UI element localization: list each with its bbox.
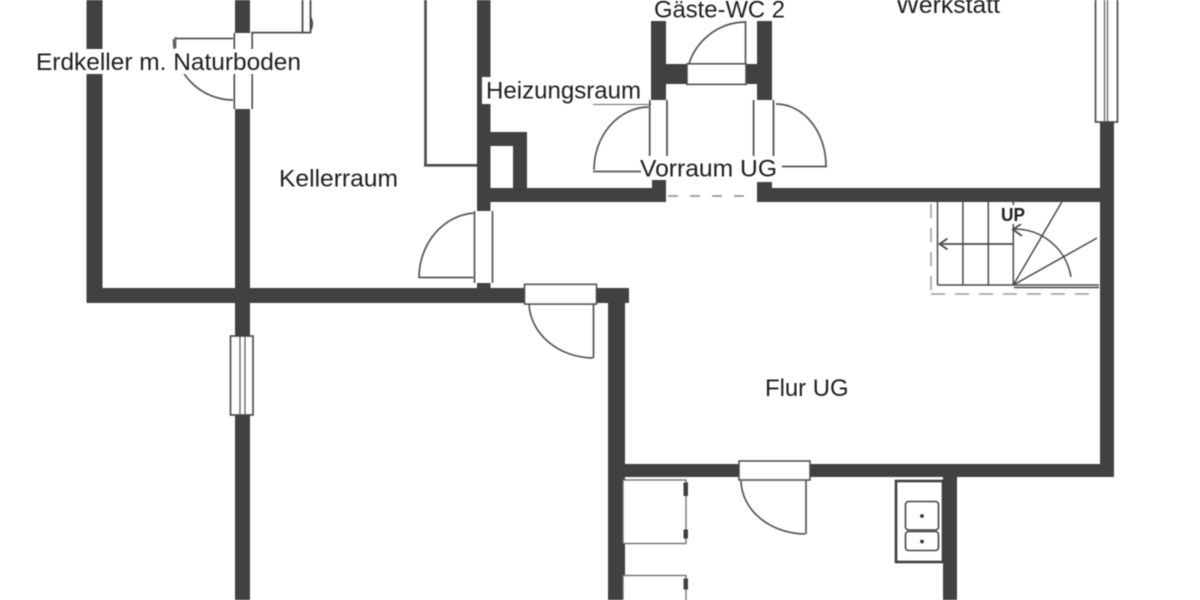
svg-text:UP: UP bbox=[1001, 205, 1025, 225]
svg-text:Gäste-WC 2: Gäste-WC 2 bbox=[654, 0, 785, 24]
svg-text:Flur UG: Flur UG bbox=[765, 375, 849, 402]
svg-text:Vorraum UG: Vorraum UG bbox=[640, 156, 777, 183]
svg-text:Werkstatt: Werkstatt bbox=[896, 0, 1000, 19]
svg-text:Erdkeller m. Naturboden: Erdkeller m. Naturboden bbox=[36, 49, 301, 76]
svg-text:Kellerraum: Kellerraum bbox=[279, 166, 398, 193]
svg-text:Heizungsraum: Heizungsraum bbox=[486, 78, 641, 105]
